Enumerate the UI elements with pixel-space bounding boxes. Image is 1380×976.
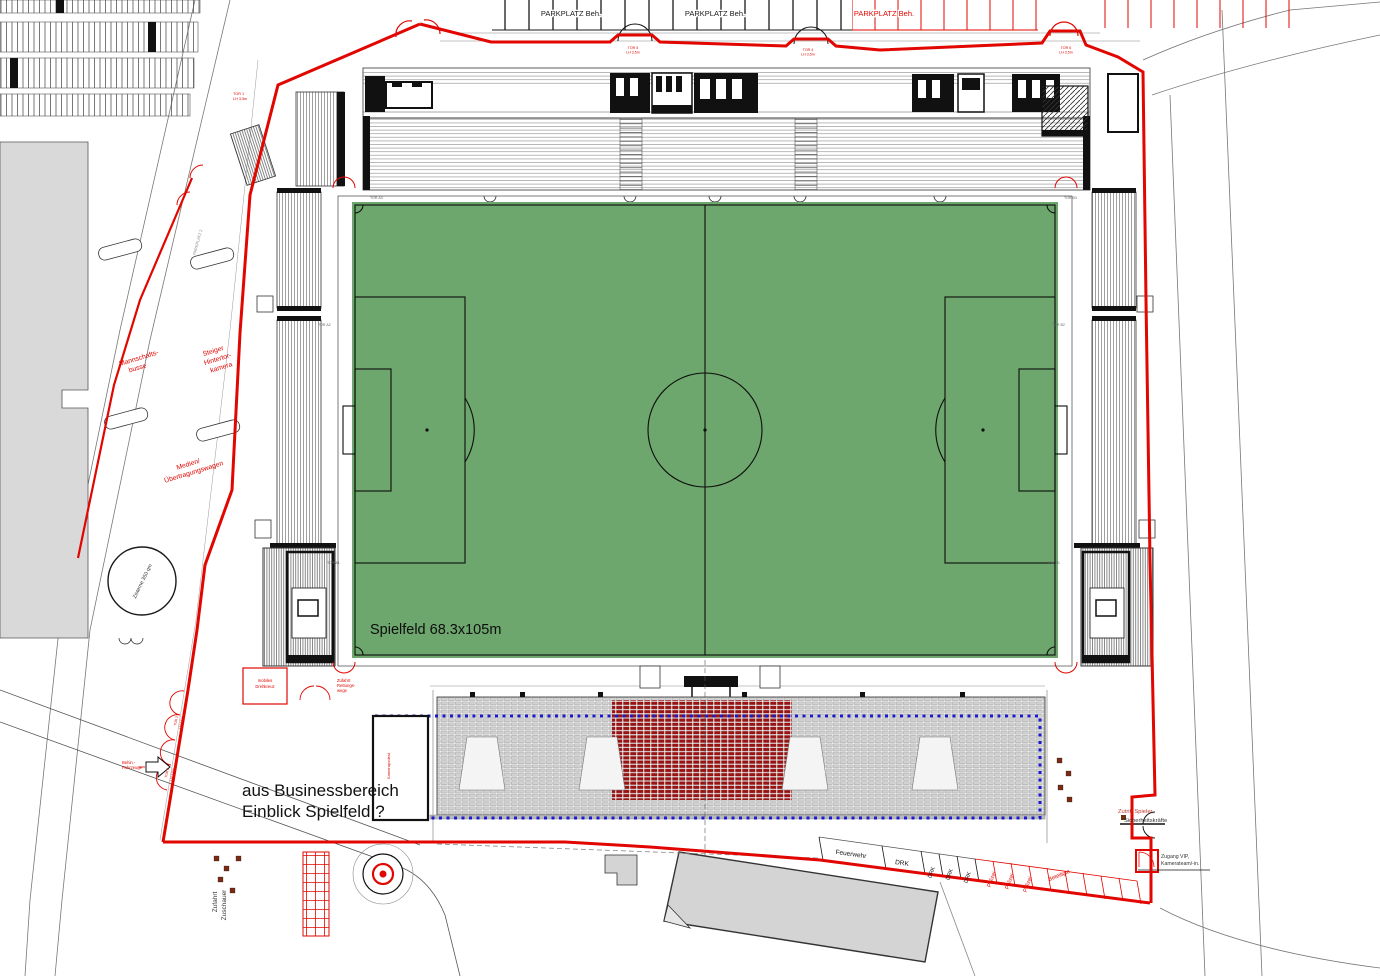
parking-row bbox=[0, 22, 198, 52]
pitch-label: Spielfeld 68.3x105m bbox=[370, 622, 501, 638]
parking-north bbox=[440, 0, 1305, 44]
bus-bay-dividers bbox=[97, 238, 241, 443]
ne-corner-block bbox=[1042, 86, 1088, 136]
camera-box-label: Kamerapodest bbox=[386, 752, 391, 779]
stadium-site-plan: PARKPLATZ Beh. PARKPLATZ Beh. PARKPLATZ … bbox=[0, 0, 1380, 976]
stand-cap bbox=[277, 188, 321, 193]
north-stand-seating bbox=[363, 118, 1090, 190]
gate-tor1-name: TOR 1 bbox=[233, 92, 244, 96]
drk-label-1: DRK bbox=[927, 866, 937, 879]
core-slot bbox=[1032, 80, 1040, 98]
pitch bbox=[338, 196, 1072, 666]
core-slot bbox=[616, 78, 624, 96]
core-comb bbox=[666, 76, 672, 92]
west-stand bbox=[230, 92, 345, 666]
stand-cap bbox=[277, 306, 321, 311]
core-bar bbox=[962, 78, 980, 90]
drk-label-2: DRK bbox=[945, 868, 955, 881]
east-stair-pod bbox=[1139, 520, 1155, 538]
core-slot bbox=[732, 79, 742, 99]
business-note-line2: Einblick Spielfeld ? bbox=[242, 802, 385, 821]
building-west-door-arcs bbox=[119, 638, 143, 644]
zutritt-spieler-line2: Sicherheitskräfte bbox=[1124, 818, 1167, 824]
core-slot bbox=[918, 80, 926, 98]
gate-arcs-red-tor6 bbox=[1050, 22, 1078, 36]
stand-end-cap bbox=[363, 116, 370, 190]
press-box-tab bbox=[412, 82, 422, 87]
drehkreuz-line2: Drehkreuz bbox=[255, 684, 274, 689]
parking-block bbox=[56, 0, 64, 13]
stand-cap bbox=[1092, 316, 1136, 321]
core-bar bbox=[652, 105, 692, 113]
stand-gate-a1: TOR A1 bbox=[327, 561, 340, 565]
zugang-vip-line2: Kamerateam/-in. bbox=[1161, 861, 1199, 867]
camera-platform-label: Steiger Hintertor- kamera bbox=[201, 343, 235, 375]
parking-row bbox=[0, 94, 190, 116]
beteiligte-label: Beteiligte bbox=[1048, 869, 1071, 883]
trees-left bbox=[214, 856, 241, 893]
nw-outer-tower bbox=[230, 125, 275, 186]
north-stand-stair bbox=[795, 118, 817, 190]
double-door-arcs bbox=[1143, 812, 1155, 838]
nw-corner-block bbox=[296, 92, 344, 186]
turning-circle-dot bbox=[380, 871, 387, 878]
parkplatz-label-2: PARKPLATZ Beh. bbox=[685, 9, 745, 18]
zutritt-spieler-line1: Zutritt Spieler, bbox=[1118, 809, 1154, 815]
core-comb bbox=[656, 76, 662, 92]
gate-tor5-clearance: LH 3,5m bbox=[626, 51, 640, 55]
gate-tor4-clearance: LH 3,5m bbox=[801, 53, 815, 57]
se-corner-room bbox=[1090, 588, 1124, 638]
centre-spot bbox=[703, 428, 706, 431]
stand-doors bbox=[470, 692, 965, 697]
media-label: Medien/ Übertragungswagen bbox=[161, 452, 224, 485]
core-slot bbox=[630, 78, 638, 96]
road-right2 bbox=[1222, 10, 1262, 976]
north-stand bbox=[363, 68, 1090, 202]
stand-gate-a3: TOR A3 bbox=[370, 196, 383, 200]
zufahrt-zuschauer-line2: Zuschauer bbox=[221, 889, 228, 921]
stand-cap bbox=[1092, 306, 1136, 311]
site-plan-drawing: PARKPLATZ Beh. PARKPLATZ Beh. PARKPLATZ … bbox=[0, 0, 1380, 976]
stand-gate-b3: TOR B3 bbox=[1064, 196, 1077, 200]
dugout-left bbox=[640, 666, 660, 688]
gate-tor6-clearance: LH 3,5m bbox=[1059, 51, 1073, 55]
building-south-large bbox=[664, 852, 938, 962]
north-stand-stair bbox=[620, 118, 642, 190]
parkplatz-label-1: PARKPLATZ Beh. bbox=[541, 9, 601, 18]
road-topright-curve2 bbox=[1152, 35, 1380, 95]
stand-cap bbox=[277, 316, 321, 321]
road-bottomright-curve bbox=[1160, 908, 1380, 968]
parking-block bbox=[148, 22, 156, 52]
gate-tor1-clearance: LH 3,5m bbox=[233, 97, 247, 101]
dugout-right bbox=[760, 666, 780, 688]
west-stand-upper bbox=[277, 192, 321, 308]
core-slot bbox=[1018, 80, 1026, 98]
parking-row bbox=[0, 58, 194, 88]
trees-right bbox=[1057, 758, 1072, 802]
walkway-door-arcs bbox=[484, 196, 946, 202]
parkplatz2-label: PARKPLATZ 2 bbox=[192, 228, 204, 255]
parking-row bbox=[0, 0, 200, 13]
core-block bbox=[365, 76, 385, 112]
parking-northwest bbox=[0, 0, 200, 116]
business-note-line1: aus Businessbereich bbox=[242, 781, 399, 800]
press-box-tab bbox=[392, 82, 402, 87]
zugang-vip-line1: Zugang VIP, bbox=[1161, 854, 1189, 860]
east-stand-lower bbox=[1092, 320, 1136, 544]
drk-label-wide: DRK bbox=[895, 859, 910, 868]
road-bottom-left1 bbox=[0, 690, 420, 845]
drk-label-3: DRK bbox=[963, 871, 973, 884]
stand-gate-b1: TOR B1 bbox=[1047, 561, 1060, 565]
rettung-line3: wege bbox=[337, 688, 348, 693]
sw-corner-room bbox=[292, 588, 326, 638]
gate-tor6-name: TOR 6 bbox=[1061, 46, 1072, 50]
west-stand-lower bbox=[277, 320, 321, 544]
stalls-red-east bbox=[1098, 0, 1305, 28]
west-stair-pod bbox=[257, 296, 273, 312]
ne-corner-bar bbox=[1042, 130, 1088, 136]
building-south-small bbox=[605, 855, 637, 885]
core-comb bbox=[676, 76, 682, 92]
stand-cap bbox=[1092, 188, 1136, 193]
gate-tor5-name: TOR 5 bbox=[628, 46, 639, 50]
road-right1 bbox=[1170, 95, 1205, 976]
stand-cap bbox=[270, 543, 336, 548]
penalty-spot-right bbox=[981, 428, 984, 431]
drehkreuz-line1: mobiles bbox=[258, 678, 272, 683]
bus-parking-label: Mannschafts- busse bbox=[118, 349, 162, 376]
road-bottom-mid bbox=[940, 882, 975, 976]
ne-building bbox=[1108, 74, 1138, 132]
scoreboard bbox=[684, 676, 738, 687]
nw-corner-bar bbox=[337, 92, 345, 186]
feuerwehr-label: Feuerwehr bbox=[835, 849, 868, 860]
red-grid-block bbox=[303, 852, 329, 936]
stand-gate-a2: TOR A2 bbox=[318, 323, 331, 327]
east-stand-upper bbox=[1092, 192, 1136, 308]
stand-cap bbox=[1074, 543, 1140, 548]
gate-tor4-name: TOR 4 bbox=[803, 48, 814, 52]
parking-block bbox=[10, 58, 18, 88]
behinderte-line2: Fahrzeuge bbox=[122, 765, 143, 770]
zufahrt-zuschauer-line1: Zufahrt bbox=[212, 892, 219, 913]
sw-corner-bar bbox=[287, 655, 333, 661]
rescue-gate-arcs bbox=[300, 686, 330, 700]
building-west-large bbox=[0, 142, 88, 638]
se-corner-bar bbox=[1083, 655, 1129, 661]
core-slot bbox=[700, 79, 710, 99]
core-slot bbox=[932, 80, 940, 98]
penalty-spot-left bbox=[425, 428, 428, 431]
parkplatz-label-3: PARKPLATZ Beh. bbox=[854, 9, 914, 18]
core-slot bbox=[716, 79, 726, 99]
south-stand bbox=[373, 660, 1047, 880]
stand-gate-b2: TOR B2 bbox=[1052, 323, 1065, 327]
west-stair-pod bbox=[255, 520, 271, 538]
